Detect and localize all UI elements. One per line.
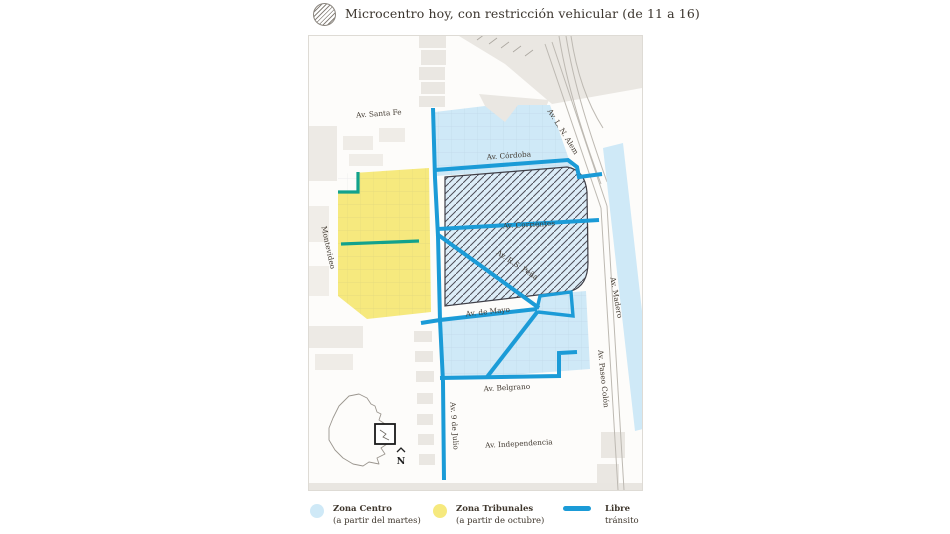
legend-item-zona-tribunales: Zona Tribunales (a partir de octubre)	[433, 503, 544, 527]
city-block	[417, 393, 433, 404]
legend-sublabel: (a partir de octubre)	[456, 515, 544, 527]
zona-centro-swatch-icon	[310, 504, 324, 518]
label-9-de-julio: Av. 9 de Julio	[448, 401, 460, 451]
microcentro-zone	[445, 167, 588, 306]
city-block	[309, 266, 329, 296]
city-block	[597, 464, 619, 484]
label-paseo-colon: Av. Paseo Colón	[596, 348, 611, 408]
city-block	[349, 154, 383, 166]
city-block	[419, 67, 445, 80]
city-block	[419, 454, 435, 465]
legend-label: Zona Tribunales	[456, 503, 544, 515]
map-canvas: Av. Santa Fe Av. Córdoba Av. Corrientes …	[309, 36, 642, 490]
label-independencia: Av. Independencia	[484, 437, 554, 450]
legend-sublabel: (a partir del martes)	[333, 515, 421, 527]
city-block	[419, 36, 446, 48]
legend-item-zona-centro: Zona Centro (a partir del martes)	[310, 503, 421, 527]
city-block	[421, 82, 445, 94]
zona-tribunales-swatch-icon	[433, 504, 447, 518]
map-card: Av. Santa Fe Av. Córdoba Av. Corrientes …	[308, 35, 643, 491]
city-block	[415, 351, 433, 362]
inset-map: N	[329, 394, 406, 467]
city-block	[379, 128, 405, 142]
legend-label: Zona Centro	[333, 503, 421, 515]
label-montevideo: Montevideo	[320, 225, 338, 270]
label-belgrano: Av. Belgrano	[482, 382, 530, 394]
label-santa-fe: Av. Santa Fe	[355, 107, 402, 119]
infographic-page: Microcentro hoy, con restricción vehicul…	[0, 0, 950, 534]
page-title: Microcentro hoy, con restricción vehicul…	[345, 6, 700, 21]
city-block	[421, 50, 446, 65]
hatched-circle-icon	[313, 3, 336, 26]
north-caret-icon	[397, 448, 405, 452]
north-label: N	[397, 456, 406, 467]
city-block	[417, 414, 433, 425]
legend-item-libre-transito: Libre tránsito	[563, 503, 639, 527]
city-block	[315, 354, 353, 370]
inset-focus-square	[375, 424, 395, 444]
city-block	[419, 96, 445, 107]
microcentro-hatch	[445, 167, 588, 306]
city-block	[309, 326, 363, 348]
city-block	[459, 36, 642, 104]
legend-label: Libre	[605, 503, 639, 515]
street-band	[309, 483, 642, 490]
city-block	[343, 136, 373, 150]
city-block	[309, 126, 337, 181]
city-block	[414, 331, 432, 342]
libre-transito-swatch-icon	[563, 504, 593, 514]
legend-sublabel: tránsito	[605, 515, 639, 527]
city-block	[418, 434, 434, 445]
city-block	[416, 371, 434, 382]
